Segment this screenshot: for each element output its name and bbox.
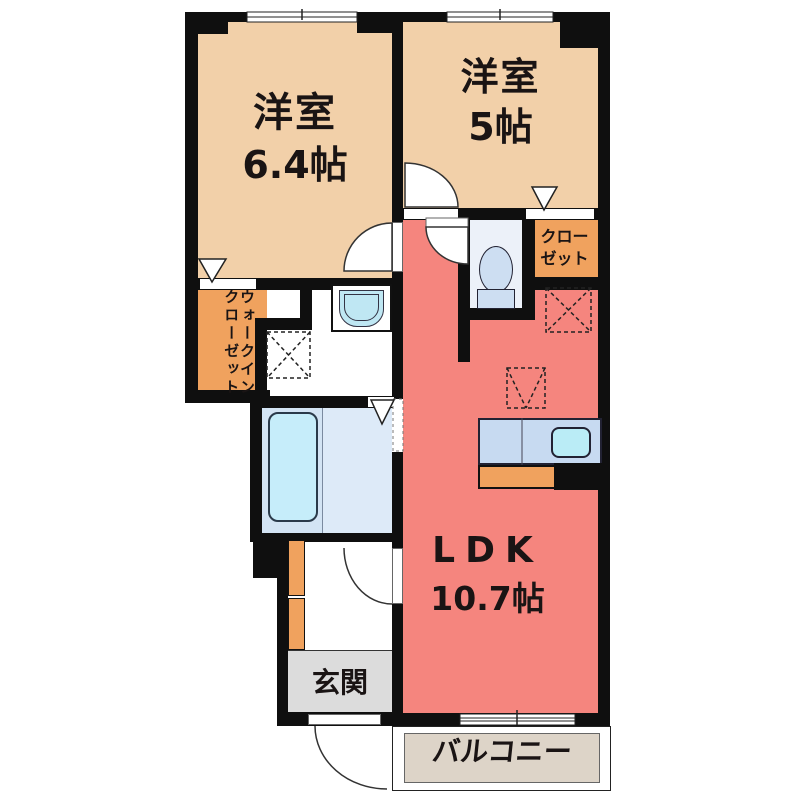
floor-plan: 洋室 6.4帖 洋室 5帖 LDK 10.7帖 クロー ゼット ウォークイン ク… — [0, 0, 800, 800]
walk-in-closet-label-line1: ウォークイン — [238, 289, 254, 393]
shoe-cabinet — [288, 598, 305, 650]
washbasin-bowl-inner — [344, 294, 379, 321]
kitchen-cabinet — [478, 465, 556, 489]
walk-in-closet-label-line2: クローゼット — [223, 289, 239, 393]
wall — [522, 277, 610, 290]
room-bedroom2-name: 洋室 — [403, 58, 598, 98]
wall — [458, 308, 535, 320]
room-bedroom1-name: 洋室 — [198, 92, 392, 134]
walk-in-closet-opening — [200, 279, 256, 289]
wall — [392, 452, 403, 548]
wall — [598, 12, 610, 726]
wall — [458, 208, 470, 362]
washbasin-bowl — [339, 290, 384, 327]
closet-label-line2: ゼット — [531, 248, 598, 270]
entrance-door-leaf — [308, 714, 381, 725]
kitchen-sink — [551, 427, 591, 458]
bedroom1-door-leaf — [392, 222, 403, 272]
wall — [250, 396, 262, 533]
bathroom-door-opening — [368, 397, 394, 407]
wall — [185, 12, 198, 403]
kitchen-end-block — [554, 463, 602, 490]
wall-pillar — [185, 12, 228, 34]
washbasin — [331, 284, 392, 332]
ldk-door-leaf — [392, 548, 403, 604]
bedroom2-door-opening — [404, 209, 458, 219]
door-arc-entrance — [315, 726, 387, 789]
wall — [392, 272, 403, 398]
room-ldk-size: 10.7帖 — [405, 582, 570, 617]
toilet-bowl — [479, 246, 513, 293]
toilet-tank — [477, 289, 515, 309]
balcony-label: バルコニー — [402, 737, 601, 766]
room-ldk-name: LDK — [405, 532, 570, 570]
room-bedroom2-size: 5帖 — [403, 108, 598, 148]
wall — [392, 604, 403, 726]
entrance-label: 玄関 — [288, 668, 392, 697]
shoe-cabinet — [288, 540, 305, 596]
room-bedroom1-size: 6.4帖 — [198, 146, 392, 186]
closet-opening — [526, 209, 594, 219]
wall — [253, 533, 277, 578]
walk-in-closet-label: ウォークイン クローゼット — [206, 289, 254, 393]
closet-label: クロー ゼット — [531, 226, 598, 271]
wall — [392, 12, 403, 222]
wall — [277, 533, 288, 722]
wall — [390, 713, 610, 726]
bathtub — [268, 412, 318, 522]
bathroom-drying-area — [322, 408, 392, 533]
closet-label-line1: クロー — [531, 226, 598, 248]
